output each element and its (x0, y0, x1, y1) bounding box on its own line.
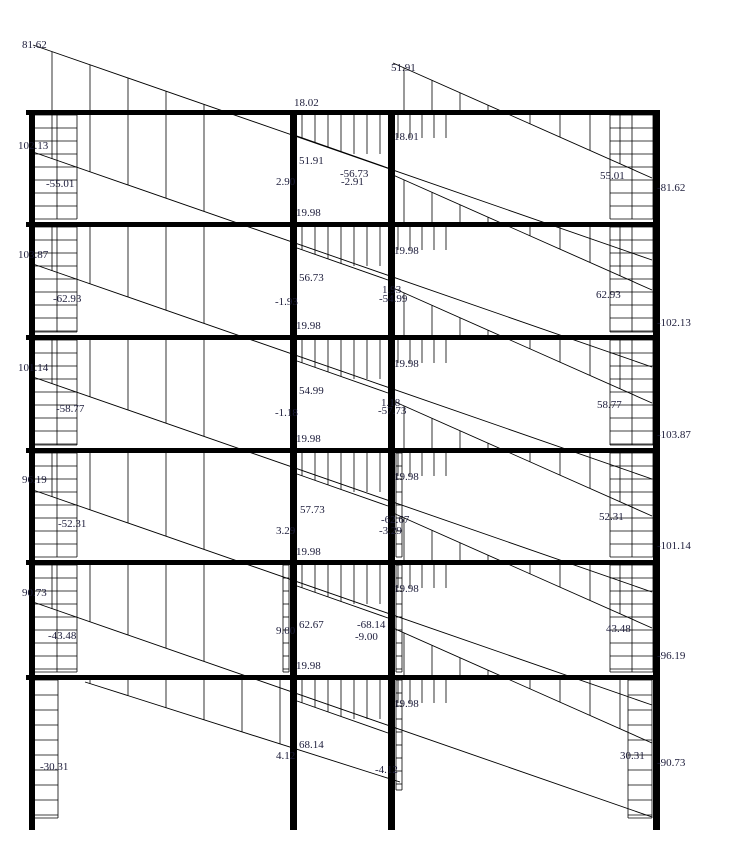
moment-value-label: 62.93 (596, 289, 621, 301)
moment-value-label: 51.91 (391, 62, 416, 74)
moment-value-label: 9.00 (276, 625, 296, 637)
moment-value-label: 18.02 (294, 97, 319, 109)
moment-value-label: 96.19 (22, 474, 47, 486)
moment-diagram-svg: 81.6251.9118.02102.13-55.0151.912.90-56.… (0, 0, 729, 867)
moment-value-label: -43.48 (48, 630, 77, 642)
moment-value-label: -52.31 (58, 518, 86, 530)
moment-value-label: 55.01 (600, 170, 625, 182)
moment-value-label: 19.98 (296, 433, 321, 445)
moment-value-label: 68.14 (299, 739, 324, 751)
moment-value-label: 102.13 (18, 140, 49, 152)
moment-value-label: 54.99 (299, 385, 324, 397)
moment-diagram-lines (33, 45, 652, 817)
moment-value-label: -62.93 (53, 293, 82, 305)
moment-value-label: -96.19 (657, 650, 686, 662)
moment-value-label: 19.98 (296, 207, 321, 219)
moment-value-label: 56.73 (299, 272, 324, 284)
moment-value-label: 2.90 (276, 176, 296, 188)
moment-value-label: 101.14 (18, 362, 49, 374)
frame-members (26, 110, 660, 830)
moment-value-label: 19.98 (394, 358, 419, 370)
moment-value-label: -2.91 (341, 176, 364, 188)
moment-value-label: -101.14 (657, 540, 691, 552)
moment-value-label: 19.98 (394, 698, 419, 710)
moment-value-label: 18.01 (394, 131, 419, 143)
moment-value-label: -1.18 (275, 407, 298, 419)
moment-value-label: 43.48 (606, 623, 631, 635)
moment-value-label: 30.31 (620, 750, 645, 762)
moment-hatch-fans (52, 52, 620, 744)
moment-value-label: 52.31 (599, 511, 624, 523)
moment-value-label: 4.12 (276, 750, 295, 762)
moment-value-label: -90.73 (657, 757, 686, 769)
moment-value-label: -81.62 (657, 182, 685, 194)
moment-value-label: -58.77 (56, 403, 85, 415)
moment-value-label: 19.98 (394, 245, 419, 257)
moment-value-label: 57.73 (300, 504, 325, 516)
moment-value-label: 19.98 (296, 320, 321, 332)
moment-value-label: -4.12 (375, 764, 398, 776)
moment-value-label: -30.31 (40, 761, 68, 773)
moment-value-label: 19.98 (296, 660, 321, 672)
moment-value-label: -55.01 (46, 178, 74, 190)
moment-value-label: 103.87 (18, 249, 49, 261)
frame-moment-diagram-figure: 81.6251.9118.02102.13-55.0151.912.90-56.… (0, 0, 729, 867)
moment-value-label: 19.98 (394, 471, 419, 483)
moment-value-label: 3.29 (276, 525, 296, 537)
moment-value-label: -3.29 (379, 525, 402, 537)
moment-value-label: 58.77 (597, 399, 622, 411)
value-labels: 81.6251.9118.02102.13-55.0151.912.90-56.… (18, 39, 691, 776)
moment-value-label: -57.73 (378, 405, 407, 417)
moment-value-label: 81.62 (22, 39, 47, 51)
moment-value-label: -1.93 (275, 296, 298, 308)
moment-value-label: -103.87 (657, 429, 691, 441)
moment-value-label: -9.00 (355, 631, 378, 643)
moment-value-label: -68.14 (357, 619, 386, 631)
moment-value-label: 19.98 (296, 546, 321, 558)
moment-value-label: -54.99 (379, 293, 408, 305)
moment-value-label: 62.67 (299, 619, 324, 631)
moment-value-label: 51.91 (299, 155, 324, 167)
moment-value-label: 90.73 (22, 587, 47, 599)
moment-value-label: -102.13 (657, 317, 691, 329)
moment-value-label: 19.98 (394, 583, 419, 595)
